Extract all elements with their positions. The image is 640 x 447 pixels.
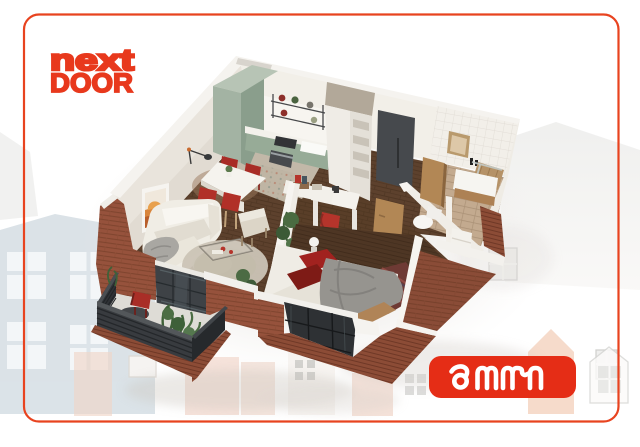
svg-text:DOOR: DOOR — [50, 68, 133, 98]
